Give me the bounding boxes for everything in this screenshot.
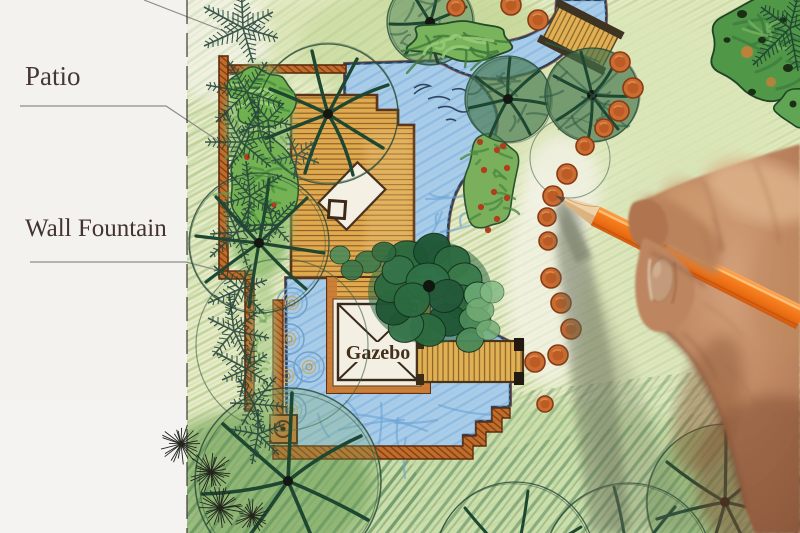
svg-text:Gazebo: Gazebo <box>346 342 410 364</box>
svg-text:Patio: Patio <box>25 61 81 91</box>
svg-text:Wall Fountain: Wall Fountain <box>25 215 167 242</box>
